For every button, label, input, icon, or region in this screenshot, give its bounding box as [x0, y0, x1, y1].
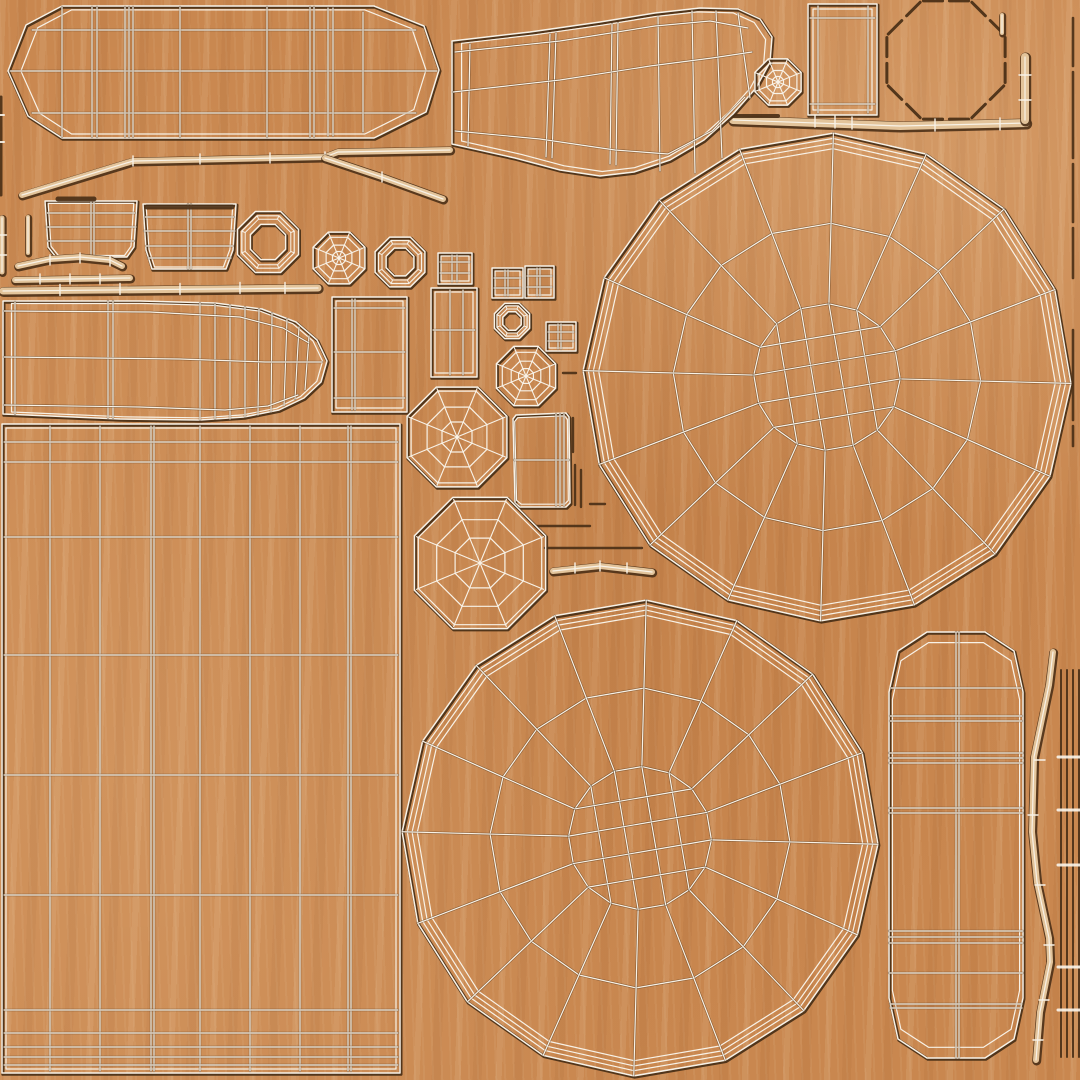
flat-strip-a: [15, 274, 131, 284]
pin-bar-top-right: [1002, 15, 1003, 34]
left-edge-strip: [0, 218, 7, 273]
pin-strip-left: [28, 217, 29, 254]
ring-octagon-b: [375, 237, 426, 288]
grid-square-b: [492, 268, 524, 299]
barrel-bottom-wheel: [402, 600, 879, 1077]
grid-square-a: [438, 253, 473, 285]
arched-strip-mid: [553, 561, 653, 573]
seat-plank-top-left: [8, 6, 440, 139]
grid-rect-top-right: [808, 4, 878, 116]
octagon-frame-top-right: [887, 1, 1005, 119]
foot-web-b: [313, 232, 366, 285]
ring-octagon-a: [238, 212, 300, 274]
can-rect: [513, 413, 571, 508]
cup-a: [45, 201, 138, 258]
foot-web-c: [496, 346, 556, 406]
wood-texture-background: [0, 0, 1080, 1080]
rail-strip-b: [325, 158, 444, 200]
cup-b: [143, 204, 237, 270]
l-bracket-strip-v: [1019, 57, 1031, 121]
curved-plank-top-middle: [452, 8, 773, 177]
curved-plank-left: [3, 301, 328, 421]
grid-rect-mid: [332, 297, 408, 413]
wavy-strip-right: [1028, 652, 1054, 1061]
grid-square-c: [525, 266, 555, 299]
seat-plank-right: [889, 632, 1024, 1059]
tabletop-grid: [2, 424, 401, 1074]
foot-web-d: [407, 387, 508, 488]
ring-octagon-small: [494, 303, 530, 339]
grid-square-d: [546, 322, 577, 352]
foot-web-e: [414, 497, 546, 629]
barrel-top-wheel: [583, 133, 1072, 622]
uv-wireframe-canvas: [0, 0, 1080, 1080]
rail-strip-a: [22, 150, 451, 196]
grid-rect-small-tall: [431, 288, 478, 378]
